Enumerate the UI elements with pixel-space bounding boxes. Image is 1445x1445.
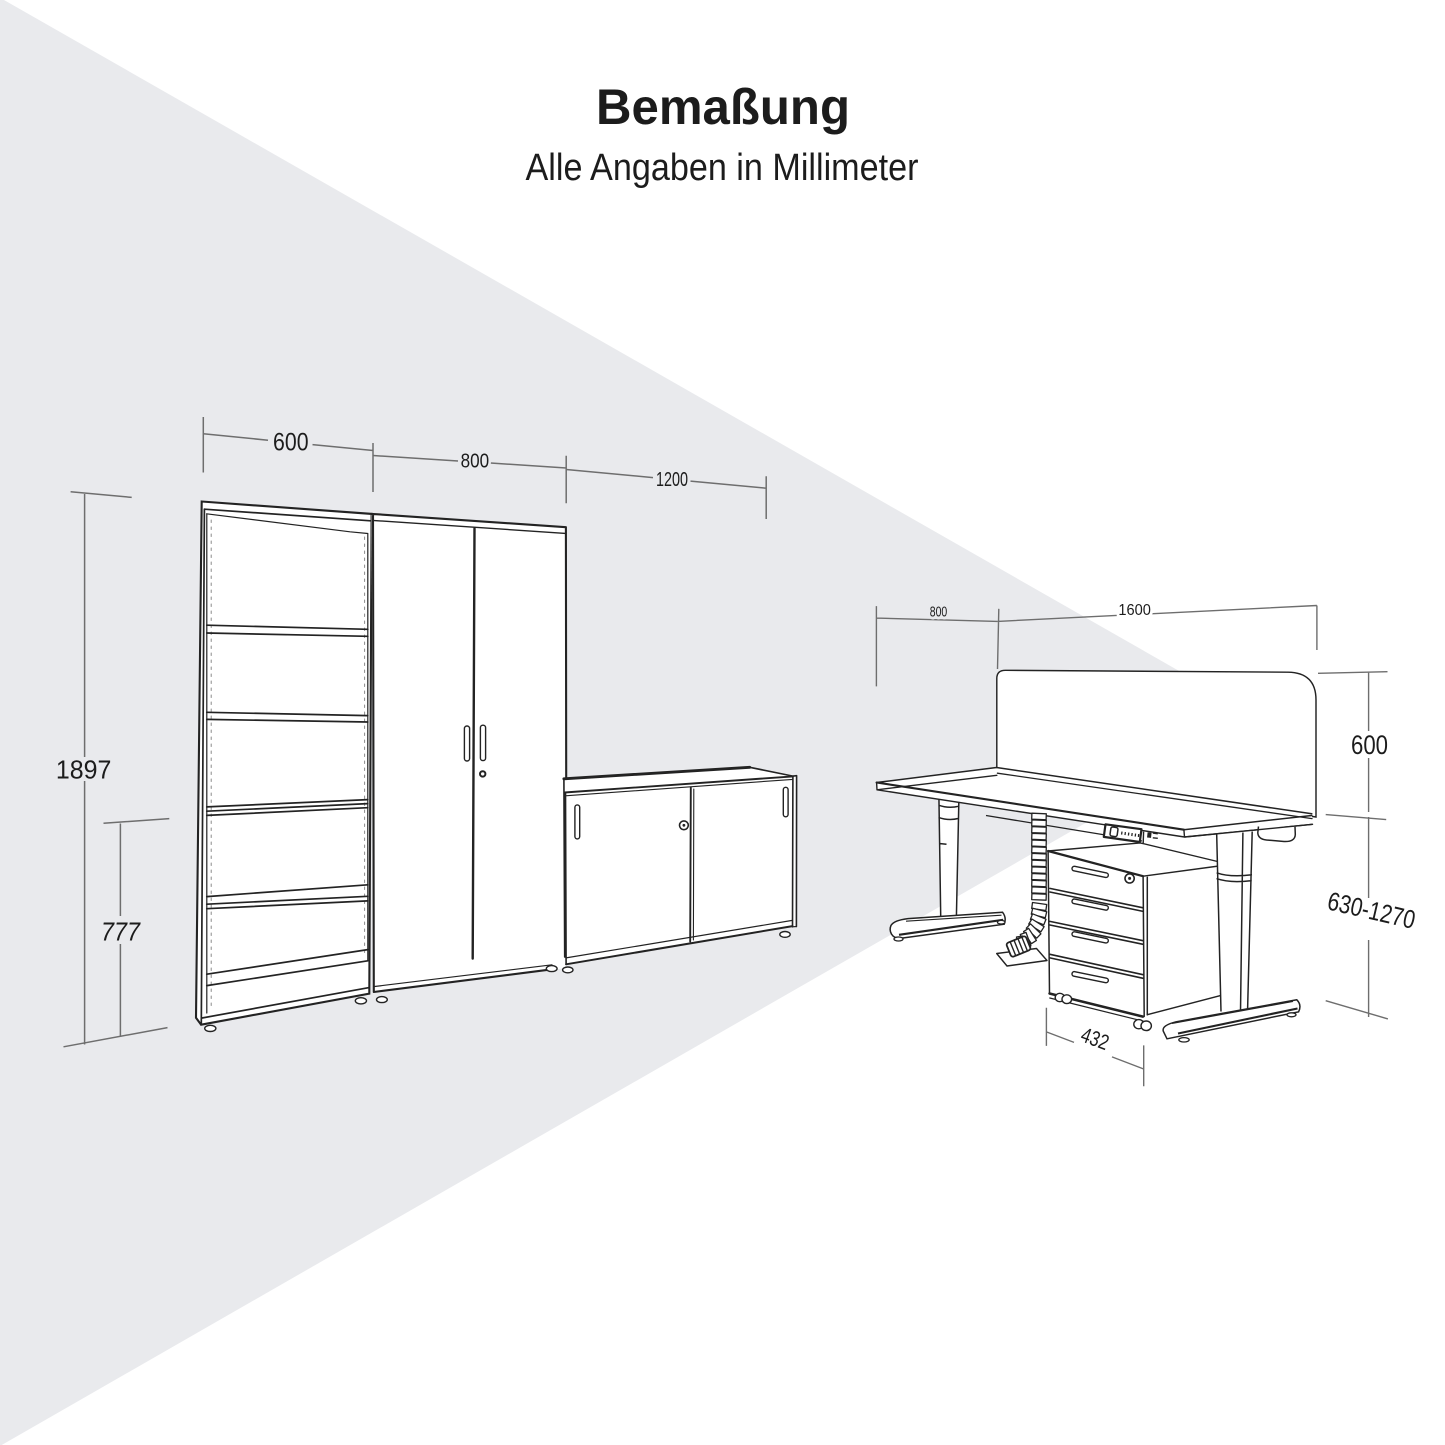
svg-text:1200: 1200	[656, 469, 688, 491]
svg-text:600: 600	[1351, 730, 1388, 760]
svg-text:Bemaßung: Bemaßung	[596, 79, 850, 135]
svg-text:Alle Angaben in Millimeter: Alle Angaben in Millimeter	[526, 147, 919, 189]
svg-text:600: 600	[273, 429, 309, 457]
svg-text:800: 800	[930, 604, 948, 620]
svg-text:800: 800	[461, 451, 490, 473]
svg-text:1897: 1897	[56, 754, 112, 784]
svg-text:777: 777	[101, 916, 141, 946]
svg-text:1600: 1600	[1118, 602, 1151, 619]
